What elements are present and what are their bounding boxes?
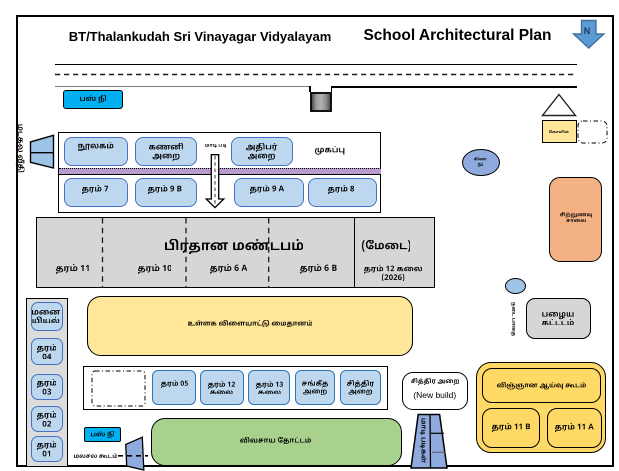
svg-text:N: N — [584, 26, 591, 36]
